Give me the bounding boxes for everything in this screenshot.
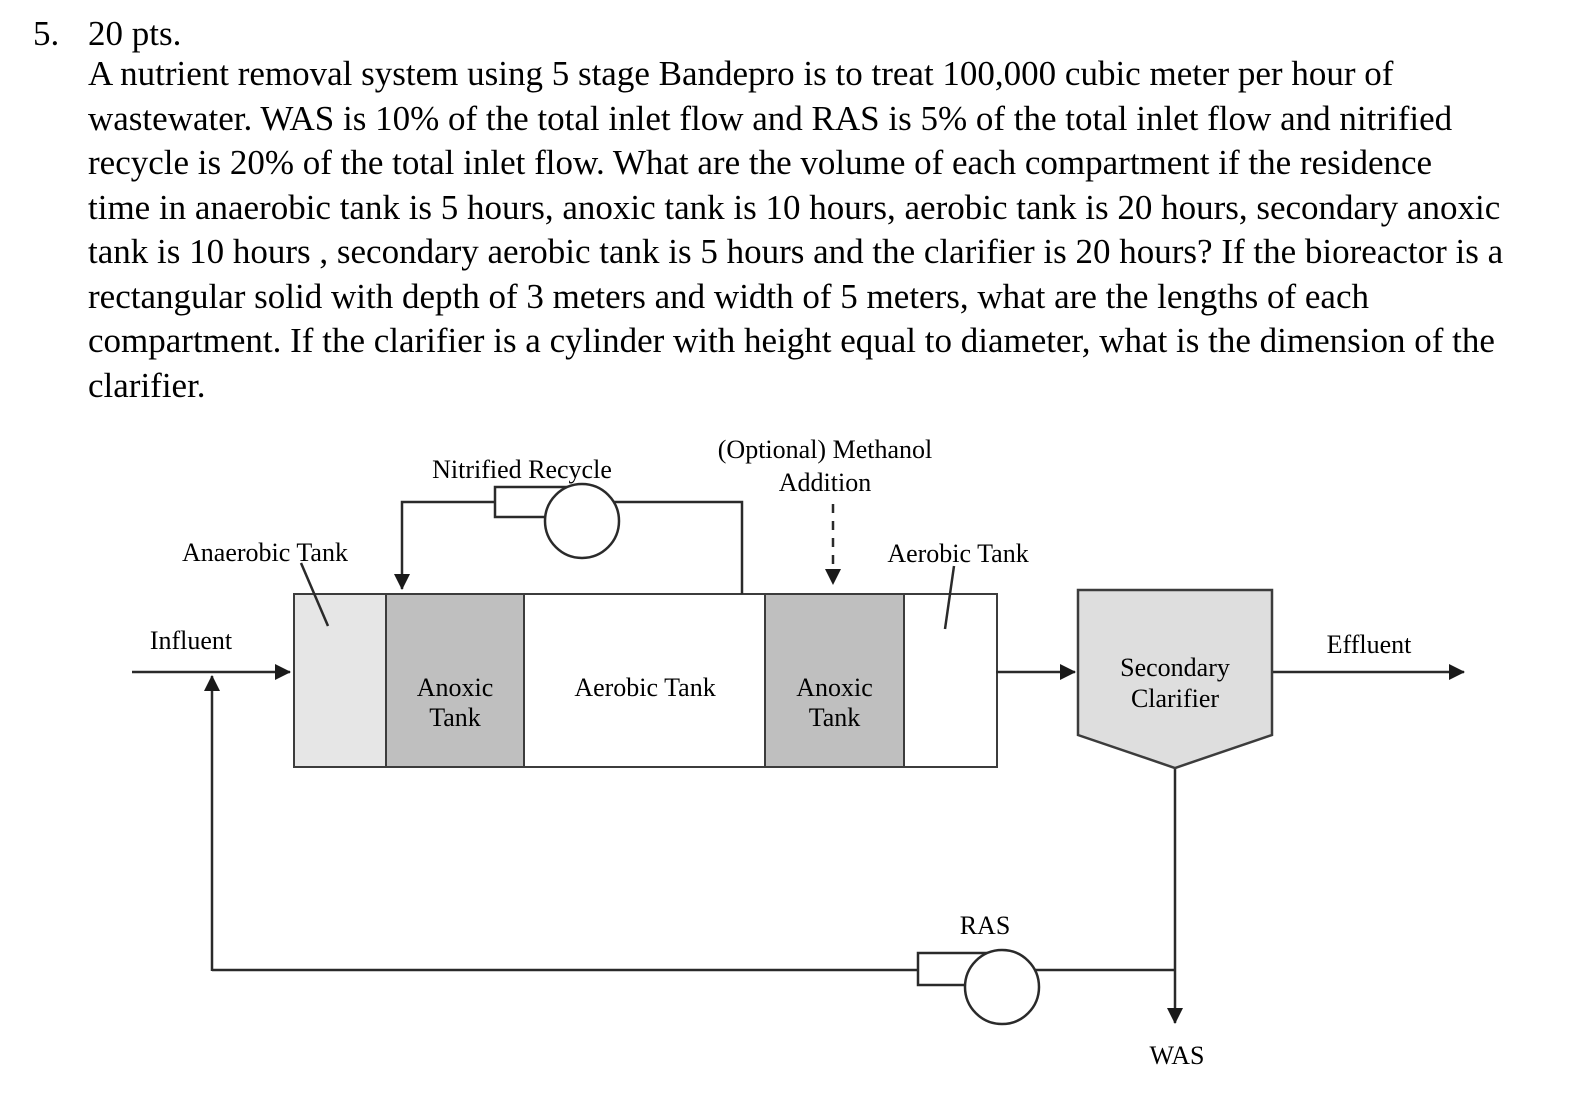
recycle-pump-body — [495, 487, 580, 517]
problem-text-line: time in anaerobic tank is 5 hours, anoxi… — [88, 186, 1568, 231]
problem-points: 20 pts. — [88, 12, 181, 56]
ras-label: RAS — [935, 910, 1035, 941]
ras-pump-icon — [918, 950, 1039, 1024]
aerobic-tank-label: Aerobic Tank — [525, 673, 765, 703]
problem-text-line: wastewater. WAS is 10% of the total inle… — [88, 97, 1568, 142]
anoxic-tank-2-label: Anoxic Tank — [766, 673, 903, 733]
problem-text-line: compartment. If the clarifier is a cylin… — [88, 319, 1568, 364]
problem-text-line: A nutrient removal system using 5 stage … — [88, 52, 1568, 97]
effluent-label: Effluent — [1309, 629, 1429, 660]
problem-statement: A nutrient removal system using 5 stage … — [88, 52, 1568, 408]
aerobic-tank: Aerobic Tank — [523, 593, 767, 768]
anoxic-tank-1-label: Anoxic Tank — [387, 673, 523, 733]
recycle-pump-icon — [495, 484, 619, 558]
recycle-pump-impeller — [545, 484, 619, 558]
problem-text-line: tank is 10 hours , secondary aerobic tan… — [88, 230, 1568, 275]
problem-text-line: recycle is 20% of the total inlet flow. … — [88, 141, 1568, 186]
nitrified-recycle-line — [402, 502, 742, 594]
was-label: WAS — [1117, 1040, 1237, 1071]
anaerobic-tank — [293, 593, 387, 768]
nitrified-recycle-label: Nitrified Recycle — [412, 454, 632, 485]
document-page: 5. 20 pts. A nutrient removal system usi… — [0, 0, 1578, 1116]
influent-label: Influent — [131, 625, 251, 656]
ras-pump-impeller — [965, 950, 1039, 1024]
problem-text-line: rectangular solid with depth of 3 meters… — [88, 275, 1568, 320]
problem-text-line: clarifier. — [88, 364, 1568, 409]
aerobic-tank-callout-label: Aerobic Tank — [858, 538, 1058, 569]
anaerobic-tank-callout-label: Anaerobic Tank — [165, 537, 365, 568]
anoxic-tank-1: Anoxic Tank — [385, 593, 525, 768]
secondary-clarifier-label: Secondary Clarifier — [1078, 652, 1272, 714]
anoxic-tank-2: Anoxic Tank — [764, 593, 905, 768]
secondary-aerobic-tank — [903, 593, 998, 768]
problem-number: 5. — [33, 12, 59, 56]
ras-pump-body — [918, 953, 997, 985]
methanol-addition-label: (Optional) Methanol Addition — [712, 433, 938, 499]
